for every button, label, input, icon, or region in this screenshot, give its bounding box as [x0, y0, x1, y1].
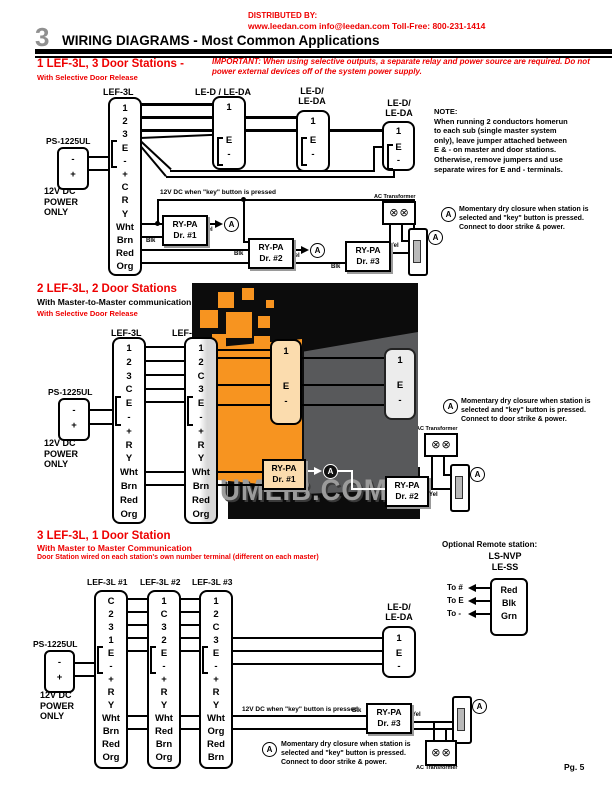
wire	[140, 134, 213, 139]
wire	[410, 721, 452, 723]
wire	[373, 146, 375, 172]
wire	[126, 598, 147, 600]
s1-power-model: PS-1225UL	[46, 136, 90, 146]
jumper-bracket	[301, 137, 307, 166]
watermark-block	[242, 288, 254, 300]
s3-power-caption: 12V DC POWER ONLY	[40, 690, 74, 722]
wire	[431, 455, 433, 489]
terminal-label: E -	[272, 379, 300, 409]
s3-master1-label: LEF-3L #1	[87, 577, 127, 587]
wire	[351, 470, 353, 489]
wire	[216, 471, 264, 473]
s3-master-station-2: 1 C 3 2 E - + R Y Wht Red Brn Org	[147, 590, 181, 769]
s1-door3-label: LE-D/ LE-DA	[381, 98, 417, 118]
blk-label: Blk	[146, 238, 155, 244]
wire	[179, 728, 199, 730]
s3-master-station-3: 1 2 C 3 E - + R Y Wht Org Red Brn	[199, 590, 233, 769]
jumper-bracket	[111, 140, 117, 168]
blk-label: Blk	[234, 251, 243, 257]
s2-relay-2: RY-PA Dr. #2	[385, 476, 429, 507]
blk-label: Blk	[331, 264, 340, 270]
note-a-circle: A	[443, 399, 458, 414]
wire	[88, 423, 112, 425]
s3-power-model: PS-1225UL	[33, 639, 77, 649]
screw-terminal-icon: ⊗	[400, 208, 409, 219]
relay-contact-a: A	[470, 467, 485, 482]
wire	[144, 346, 184, 348]
wire	[126, 637, 147, 639]
wire	[126, 624, 147, 626]
note-a-circle: A	[441, 207, 456, 222]
wire	[179, 715, 199, 717]
yel-label: Yel	[412, 712, 421, 718]
wire	[126, 650, 147, 652]
s1-door-station-1: 1 E -	[212, 96, 246, 170]
s3-master3-label: LEF-3L #3	[192, 577, 232, 587]
wire	[231, 663, 383, 665]
s1-note: NOTE: When running 2 conductors homerun …	[434, 107, 612, 174]
s3-remote-model2: LE-SS	[470, 562, 540, 572]
header-rule-thick	[35, 49, 612, 54]
s2-power-supply: - +	[58, 398, 90, 441]
wire	[179, 611, 199, 613]
wire	[231, 650, 383, 652]
terminal-label: 1	[214, 102, 244, 113]
watermark-block	[266, 300, 274, 308]
wire	[433, 723, 435, 740]
s1-master-station: 1 2 3 E - + C R Y Wht Brn Red Org	[108, 97, 142, 276]
terminal-label: 1	[386, 355, 414, 366]
jumper-bracket	[187, 396, 193, 426]
screw-terminal-icon: ⊗	[431, 440, 440, 451]
relay-contact-a: A	[428, 230, 443, 245]
s3-subtitle: With Master to Master Communication	[37, 543, 192, 553]
wire	[140, 103, 213, 106]
s3-door-label: LE-D/ LE-DA	[381, 602, 417, 622]
door-strike	[450, 464, 470, 512]
arrow-right-icon	[215, 220, 223, 228]
s1-transformer-label: AC Transformer	[374, 194, 416, 200]
wire	[126, 715, 147, 717]
s1-subtitle: With Selective Door Release	[37, 73, 138, 82]
s1-door2-label: LE-D/ LE-DA	[294, 86, 330, 106]
wire	[144, 360, 184, 362]
s3-remote-caption: Optional Remote station:	[442, 540, 537, 549]
s2-master-station-1: 1 2 3 C E - + R Y Wht Brn Red Org	[112, 337, 146, 524]
s2-relay-1: RY-PA Dr. #1	[262, 459, 306, 490]
blk-label: Blk	[352, 708, 361, 714]
s1-power-supply: - +	[57, 147, 89, 190]
s1-master-label: LEF-3L	[103, 87, 134, 97]
yel-label: Yel	[429, 492, 438, 498]
s3-key-label: 12V DC when "key" button is pressed	[242, 706, 358, 713]
arrow-right-icon	[314, 467, 322, 475]
wire	[474, 613, 490, 615]
s3-power-supply: - +	[44, 650, 75, 693]
jumper-bracket	[387, 144, 393, 170]
wire	[87, 169, 108, 171]
s3-a-note: Momentary dry closure when station is se…	[281, 740, 441, 767]
s2-power-caption: 12V DC POWER ONLY	[44, 438, 78, 470]
wire	[166, 176, 395, 178]
s1-power-caption: 12V DC POWER ONLY	[44, 186, 78, 218]
wire	[140, 249, 248, 251]
s2-transformer-label: AC Transformer	[416, 426, 458, 432]
wire	[231, 637, 383, 639]
wire	[126, 728, 147, 730]
jumper-bracket	[217, 137, 223, 166]
s3-subtitle2: Door Station wired on each station's own…	[37, 554, 319, 561]
door-strike	[408, 228, 428, 276]
s1-a-note: Momentary dry closure when station is se…	[459, 205, 609, 232]
s2-a-note: Momentary dry closure when station is se…	[461, 397, 611, 424]
s3-remote-to2: To E	[447, 596, 464, 605]
terminal-label: 1	[272, 346, 300, 357]
wire	[231, 715, 367, 717]
wire	[401, 223, 403, 241]
wire	[445, 730, 447, 740]
wire	[87, 156, 108, 158]
s1-ac-transformer: ⊗⊗	[382, 201, 416, 225]
wire	[351, 488, 385, 490]
watermark-block	[226, 312, 252, 338]
page-number: Pg. 5	[564, 762, 584, 772]
jumper-bracket	[97, 646, 103, 674]
jumper-bracket	[150, 646, 156, 674]
relay-contact-a: A	[310, 243, 325, 258]
watermark-block	[200, 310, 218, 328]
s3-remote-model1: LS-NVP	[470, 551, 540, 561]
wire	[144, 484, 184, 486]
jumper-bracket	[115, 396, 121, 426]
wire	[337, 470, 352, 472]
wire	[216, 484, 264, 486]
s3-remote-station: Red Blk Grn	[490, 578, 528, 636]
wire	[179, 624, 199, 626]
watermark-block	[218, 292, 234, 308]
s2-ac-transformer: ⊗⊗	[424, 433, 458, 457]
terminal-label: 1	[298, 116, 328, 127]
arrow-left-icon	[468, 597, 476, 605]
wire	[179, 598, 199, 600]
s1-important-note: IMPORTANT: When using selective outputs,…	[212, 57, 604, 77]
relay-contact-a: A	[472, 699, 487, 714]
door-strike	[452, 696, 472, 744]
distributed-by-label: DISTRIBUTED BY:	[248, 11, 317, 20]
arrow-left-icon	[468, 610, 476, 618]
wire	[126, 611, 147, 613]
screw-terminal-icon: ⊗	[442, 748, 451, 759]
wire	[140, 262, 345, 264]
s1-key-label: 12V DC when "key" button is pressed	[160, 189, 276, 196]
wire	[170, 170, 375, 172]
s2-door-station-2: 1 E -	[384, 348, 416, 420]
s1-door-station-2: 1 E -	[296, 110, 330, 172]
s3-title: 3 LEF-3L, 1 Door Station	[37, 530, 171, 542]
relay-contact-a: A	[323, 464, 338, 479]
s1-title: 1 LEF-3L, 3 Door Stations -	[37, 58, 184, 70]
terminal-label: 1	[384, 633, 414, 644]
wire	[443, 455, 445, 476]
wire	[216, 349, 272, 351]
s3-master2-label: LEF-3L #2	[140, 577, 180, 587]
s2-door-station-1: 1 E -	[270, 339, 302, 425]
s1-relay-3: RY-PA Dr. #3	[345, 241, 391, 272]
s1-door-station-3: 1 E -	[382, 121, 415, 171]
s3-relay-3: RY-PA Dr. #3	[366, 703, 412, 734]
contact-line: www.leedan.com info@leedan.com Toll-Free…	[248, 21, 485, 31]
page-title: WIRING DIAGRAMS - Most Common Applicatio…	[62, 33, 380, 48]
terminal-label: E -	[384, 647, 414, 673]
wire	[73, 662, 94, 664]
s2-subtitle2: With Selective Door Release	[37, 309, 138, 318]
wire	[474, 600, 490, 602]
s1-relay-2: RY-PA Dr. #2	[248, 238, 294, 269]
terminal-label: 1	[384, 126, 413, 137]
watermark-block	[258, 316, 270, 328]
wire	[179, 650, 199, 652]
s3-remote-to3: To -	[447, 609, 461, 618]
screw-terminal-icon: ⊗	[389, 208, 398, 219]
wire	[144, 374, 184, 376]
s2-title: 2 LEF-3L, 2 Door Stations	[37, 283, 177, 295]
wire	[231, 728, 452, 730]
jumper-bracket	[202, 646, 208, 674]
relay-contact-a: A	[224, 217, 239, 232]
manual-page: DISTRIBUTED BY: www.leedan.com info@leed…	[0, 0, 612, 792]
yel-label: Yel	[390, 243, 399, 249]
s3-remote-to1: To #	[447, 583, 463, 592]
arrow-right-icon	[301, 246, 309, 254]
screw-terminal-icon: ⊗	[431, 748, 440, 759]
wire	[144, 388, 184, 390]
wire	[88, 409, 112, 411]
note-a-circle: A	[262, 742, 277, 757]
junction-dot	[241, 197, 246, 202]
s3-door-station: 1 E -	[382, 626, 416, 678]
s3-master-station-1: C 2 3 1 E - + R Y Wht Brn Red Org	[94, 590, 128, 769]
terminal-label: E -	[386, 378, 414, 408]
s2-subtitle: With Master-to-Master communication	[37, 297, 191, 307]
wire	[243, 199, 245, 241]
s1-relay-1: RY-PA Dr. #1	[162, 215, 208, 246]
s2-master-station-2: 1 2 C 3 E - + R Y Wht Brn Red Org	[184, 337, 218, 524]
arrow-left-icon	[468, 584, 476, 592]
wire	[73, 675, 94, 677]
wire	[389, 252, 408, 254]
wire	[179, 637, 199, 639]
wire	[144, 471, 184, 473]
wire	[144, 401, 184, 403]
s2-power-model: PS-1225UL	[48, 387, 92, 397]
junction-dot	[155, 221, 160, 226]
screw-terminal-icon: ⊗	[442, 440, 451, 451]
wire	[140, 129, 383, 132]
s3-ac-transformer: ⊗⊗	[425, 740, 457, 766]
wire	[474, 587, 490, 589]
